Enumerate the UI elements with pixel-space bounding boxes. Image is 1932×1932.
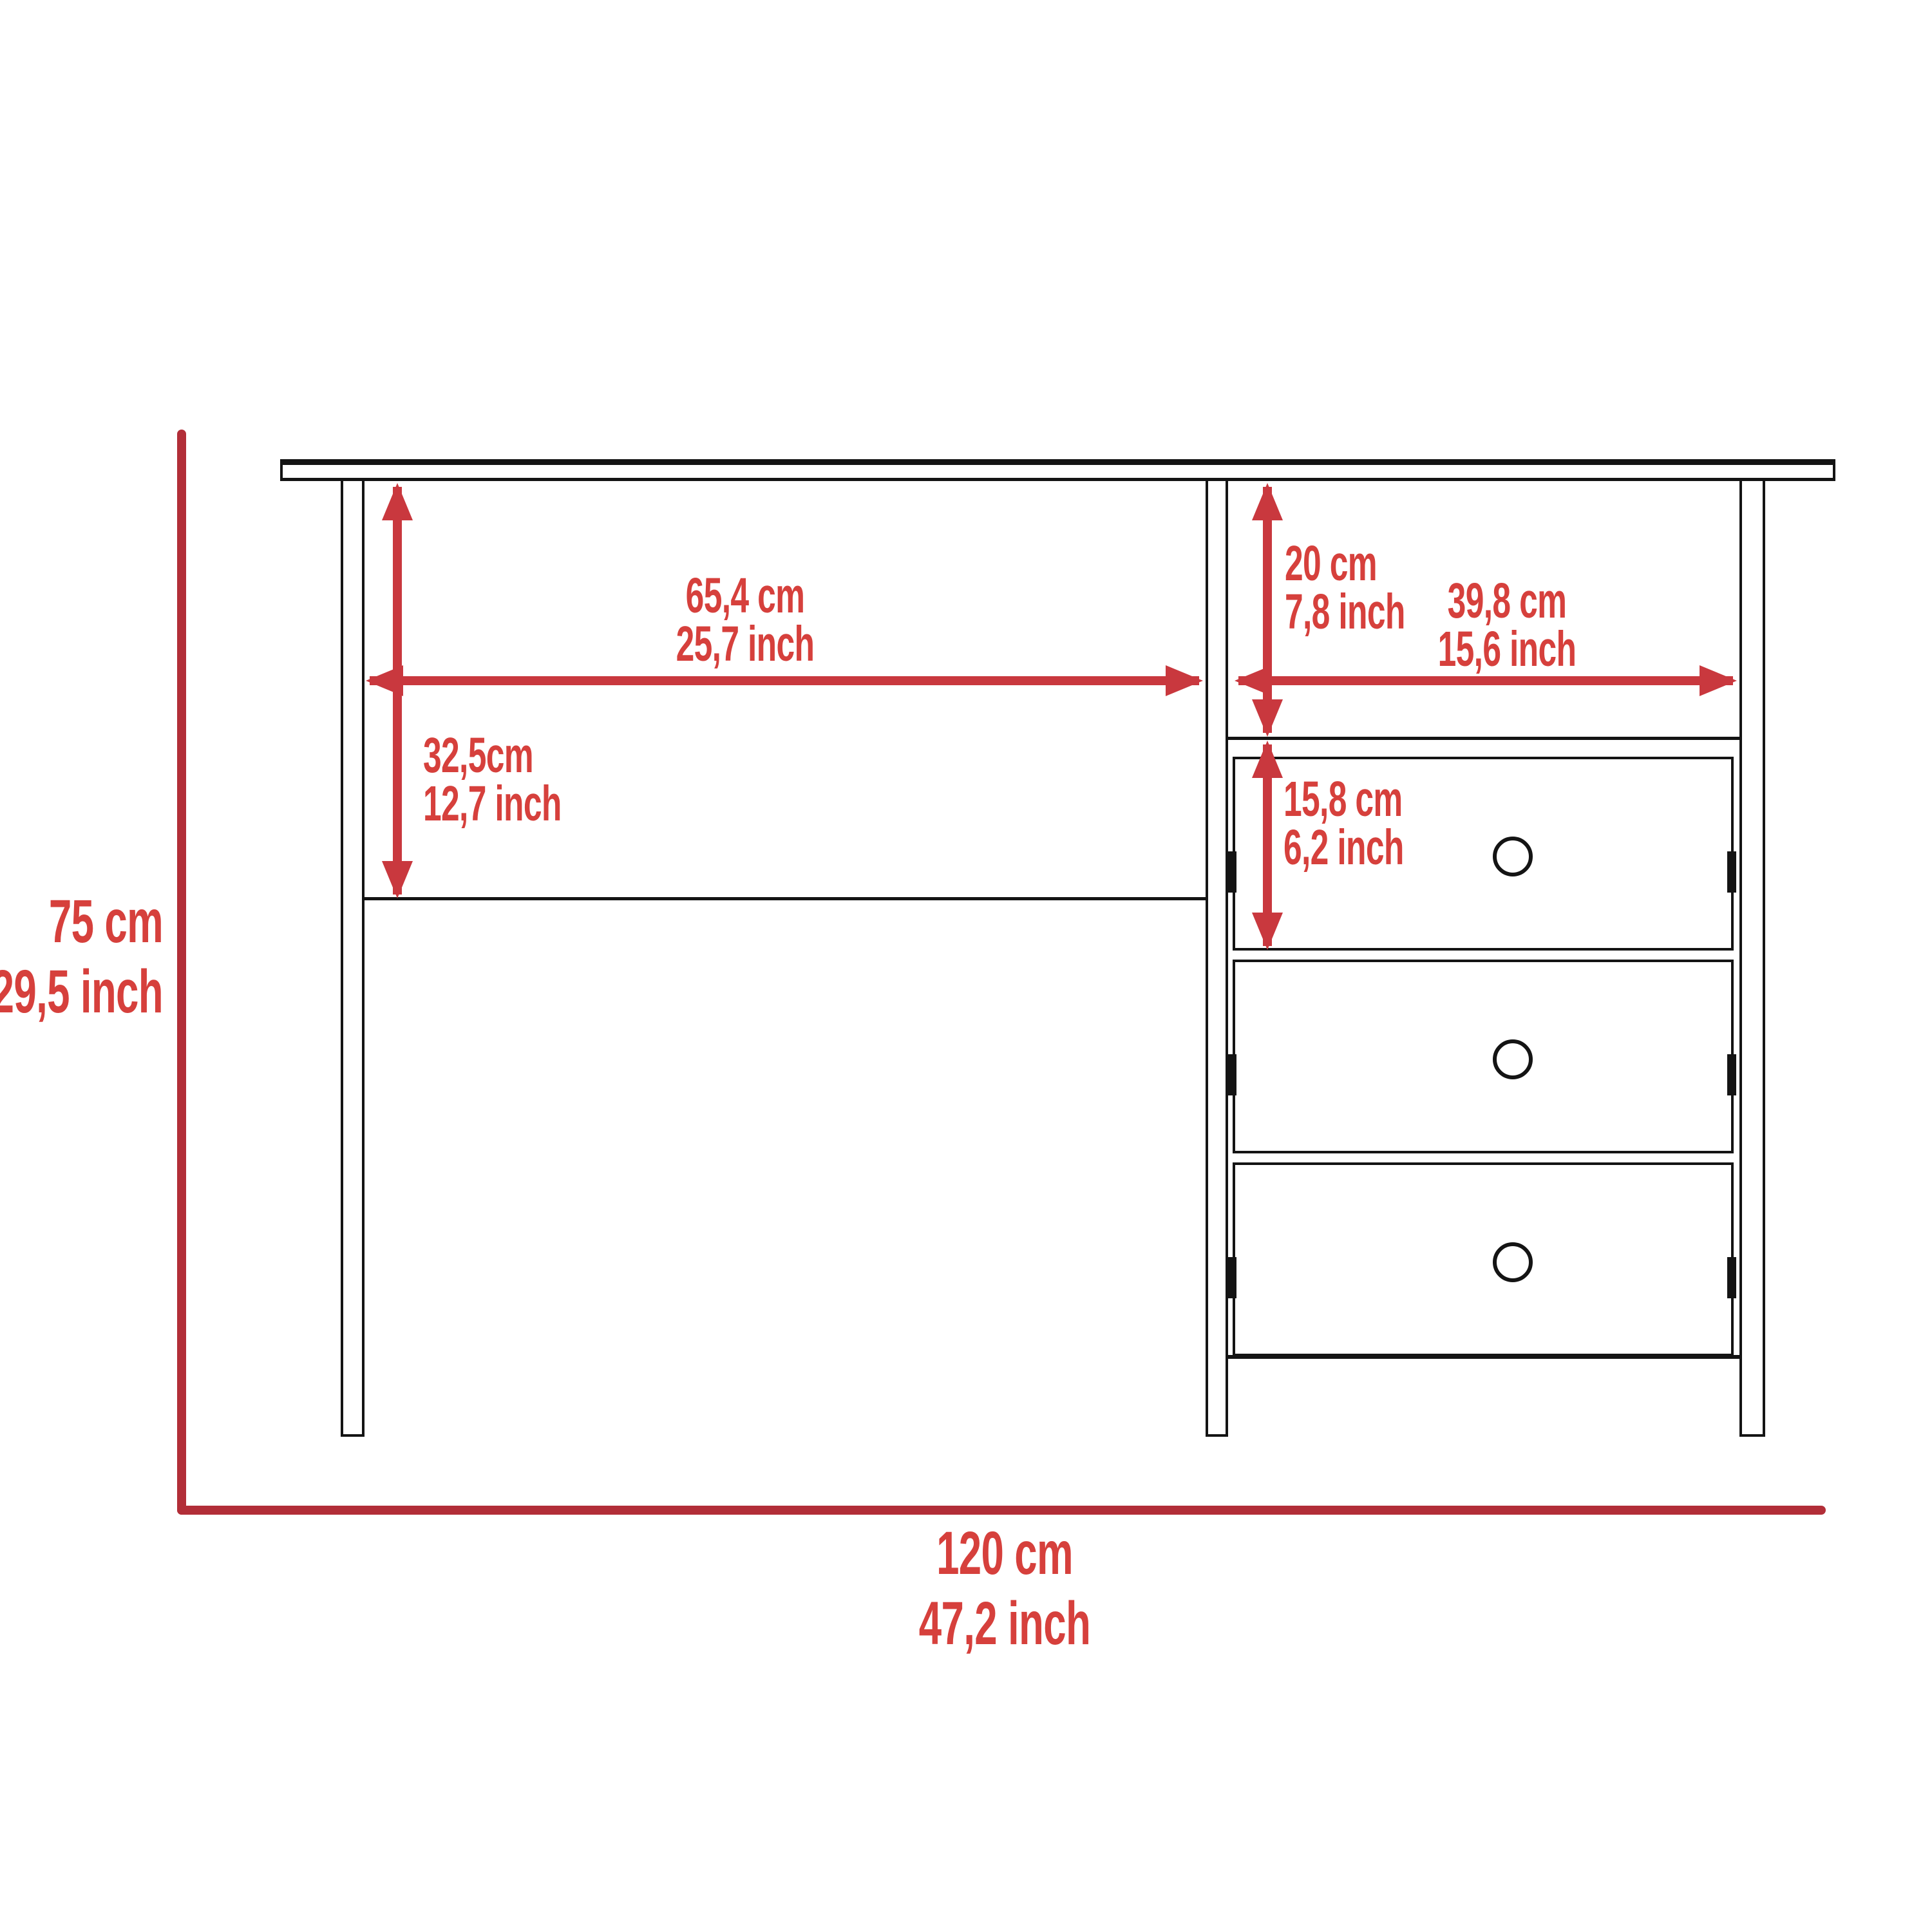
dim-label-drawer-height: 15,8 cm 6,2 inch — [1283, 775, 1542, 872]
dim-value-inch: 25,7 inch — [616, 620, 875, 668]
arrowhead-right-icon — [1700, 665, 1737, 696]
arrowhead-up-icon — [1252, 483, 1283, 520]
arrowhead-up-icon — [382, 483, 413, 520]
dim-value-cm: 120 cm — [854, 1519, 1156, 1589]
overall-height-dimension-line — [177, 430, 186, 1515]
dim-value-inch: 47,2 inch — [854, 1589, 1156, 1659]
pedestal-left-panel — [1206, 481, 1228, 1437]
dimension-diagram: 65,4 cm 25,7 inch 32,5cm 12,7 inch 20 cm… — [0, 0, 1932, 1932]
drawer-2-knob — [1493, 1039, 1533, 1079]
arrowhead-down-icon — [1252, 913, 1283, 950]
drawer-1-right-hinge-mark — [1727, 851, 1736, 893]
arrowhead-down-icon — [382, 861, 413, 898]
dim-label-back-panel-height: 32,5cm 12,7 inch — [423, 732, 682, 828]
dim-value-inch: 6,2 inch — [1283, 824, 1542, 872]
dim-value-inch: 29,5 inch — [0, 957, 163, 1027]
dim-value-cm: 75 cm — [0, 887, 163, 957]
drawer-2 — [1233, 960, 1734, 1153]
left-leg — [341, 481, 365, 1437]
overall-width-dimension-line — [177, 1506, 1826, 1515]
dim-value-cm: 15,8 cm — [1283, 775, 1542, 824]
dim-label-overall-height: 75 cm 29,5 inch — [0, 887, 163, 1027]
arrowhead-up-icon — [1252, 741, 1283, 778]
desk-top — [280, 459, 1835, 481]
drawer-1-left-hinge-mark — [1227, 851, 1236, 893]
back-panel-bottom-edge — [365, 897, 1206, 900]
dim-value-cm: 65,4 cm — [616, 572, 875, 620]
drawer-3-right-hinge-mark — [1727, 1257, 1736, 1298]
drawer-2-right-hinge-mark — [1727, 1054, 1736, 1095]
dim-label-pedestal-width: 39,8 cm 15,6 inch — [1378, 577, 1636, 674]
dim-value-cm: 32,5cm — [423, 732, 682, 780]
dim-label-knee-width: 65,4 cm 25,7 inch — [616, 572, 875, 668]
dim-arrow-drawer-height — [1248, 741, 1287, 950]
dim-value-inch: 15,6 inch — [1378, 625, 1636, 674]
drawer-3-left-hinge-mark — [1227, 1257, 1236, 1298]
dim-arrow-back-panel-height — [378, 483, 417, 898]
pedestal-shelf-line — [1228, 737, 1739, 740]
dim-value-inch: 12,7 inch — [423, 780, 682, 828]
drawer-3 — [1233, 1162, 1734, 1356]
drawer-3-knob — [1493, 1242, 1533, 1282]
pedestal-right-panel — [1739, 481, 1765, 1437]
dim-value-cm: 39,8 cm — [1378, 577, 1636, 625]
dim-label-overall-width: 120 cm 47,2 inch — [854, 1519, 1156, 1659]
arrowhead-left-icon — [1235, 665, 1272, 696]
arrowhead-right-icon — [1166, 665, 1203, 696]
drawer-2-left-hinge-mark — [1227, 1054, 1236, 1095]
arrowhead-down-icon — [1252, 699, 1283, 737]
